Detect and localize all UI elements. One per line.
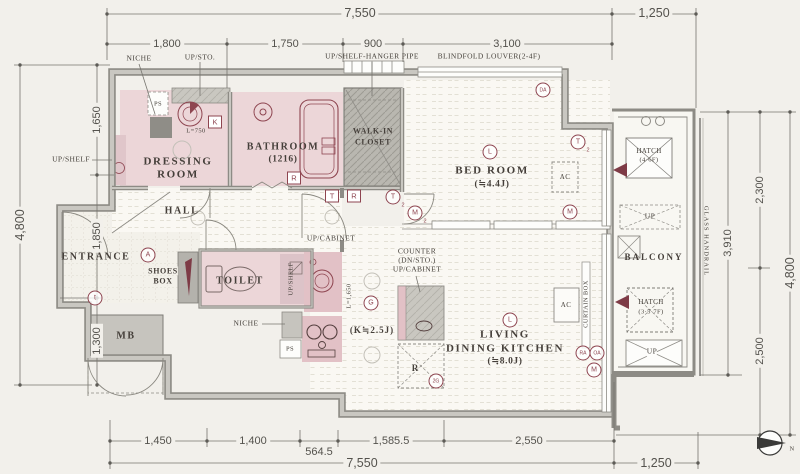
dim-bottom-seg-3: 564.5 — [302, 446, 336, 458]
dim-top-seg-4: 3,100 — [490, 38, 524, 50]
dim-left-seg-3: 1,300 — [91, 324, 103, 358]
dim-left-seg-1: 1,650 — [91, 103, 103, 137]
label-glass-handrail: GLASS HANDRAIL — [702, 206, 709, 276]
marker-oa: OA — [590, 346, 605, 361]
room-bathroom-2: (1216) — [269, 155, 298, 166]
marker-light-bedroom: L — [483, 145, 498, 160]
label-curtain-box: CURTAIN BOX — [582, 280, 589, 328]
dim-bottom-total: 7,550 — [343, 456, 380, 470]
label-up-cabinet: UP/CABINET — [307, 235, 355, 244]
room-hall: HALL — [165, 205, 200, 217]
dim-top-right: 1,250 — [635, 6, 672, 20]
label-ac-bedroom: AC — [560, 173, 571, 181]
dim-right-inner: 3,910 — [722, 226, 734, 260]
label-niche-top: NICHE — [127, 55, 152, 64]
room-ldk-1: LIVING — [480, 329, 530, 342]
dim-right-seg-1: 2,300 — [754, 173, 766, 207]
dim-right-total: 4,800 — [783, 254, 797, 291]
label-up-shelf-toilet: UP/SHELF — [287, 262, 294, 295]
label-up-balcony-1: UP — [645, 213, 655, 222]
label-hatch-upper-1: HATCH — [636, 147, 661, 155]
label-r-dashed: R — [412, 363, 419, 373]
marker-t-entry: t — [88, 291, 103, 306]
label-ps-2: PS — [286, 345, 294, 352]
label-ps-1: PS — [154, 100, 162, 107]
marker-a: A — [141, 248, 156, 263]
room-bathroom-1: BATHROOM — [247, 141, 320, 153]
box-marker-t: T — [325, 190, 339, 203]
label-ac-ldk: AC — [561, 301, 572, 309]
dim-right-seg-2: 2,500 — [754, 334, 766, 368]
floor-plan-drawing — [0, 0, 800, 474]
label-counter-3: UP/CABINET — [393, 266, 441, 275]
marker-m-right: M — [563, 205, 578, 220]
marker-ra: RA — [576, 346, 591, 361]
label-north: N — [789, 445, 794, 452]
dim-top-total: 7,550 — [341, 6, 378, 20]
marker-m-ldk: M — [587, 363, 602, 378]
label-blindfold-louver: BLINDFOLD LOUVER(2-4F) — [438, 53, 541, 62]
dim-bottom-right: 1,250 — [637, 456, 674, 470]
box-marker-r-bath: R — [287, 172, 301, 185]
room-toilet: TOILET — [216, 275, 264, 287]
dim-left-seg-2: 1,850 — [91, 219, 103, 253]
room-mb: MB — [116, 330, 135, 342]
dim-bottom-seg-5: 2,550 — [512, 435, 546, 447]
marker-da: DA — [536, 83, 551, 98]
room-entrance: ENTRANCE — [62, 251, 131, 263]
room-dressing-1: DRESSING — [143, 156, 212, 169]
label-hatch-upper-2: (4·6F) — [639, 156, 658, 163]
dim-bottom-seg-1: 1,450 — [141, 435, 175, 447]
marker-g: G — [364, 296, 379, 311]
room-ldk-3: (≒8.0J) — [487, 357, 522, 368]
label-niche-mid: NICHE — [234, 320, 259, 329]
marker-t2-right: T2 — [571, 135, 586, 150]
label-hatch-lower-1: HATCH — [638, 298, 663, 306]
room-wic-2: CLOSET — [355, 137, 391, 146]
dim-bottom-seg-2: 1,400 — [236, 435, 270, 447]
label-l750: L=750 — [186, 127, 205, 134]
dim-top-seg-2: 1,750 — [268, 38, 302, 50]
dim-left-total: 4,800 — [13, 206, 27, 243]
marker-light-ldk: L — [503, 313, 518, 328]
room-dressing-2: ROOM — [157, 169, 199, 182]
room-bedroom-1: BED ROOM — [455, 165, 529, 178]
room-shoes-1: SHOES — [148, 266, 178, 275]
label-hanger-pipe: UP/SHELF-HANGER PIPE — [325, 53, 419, 62]
marker-t2-left: T2 — [386, 190, 401, 205]
label-l1650: L=1,650 — [345, 283, 352, 308]
label-up-shelf: UP/SHELF — [52, 156, 90, 165]
marker-m2-left: M2 — [408, 206, 423, 221]
label-up-balcony-2: UP — [647, 348, 657, 357]
room-bedroom-2: (≒4.4J) — [474, 180, 509, 191]
marker-2g: 2G — [429, 374, 444, 389]
room-wic-1: WALK-IN — [353, 126, 393, 135]
box-marker-k: K — [208, 116, 222, 129]
room-balcony: BALCONY — [624, 252, 683, 262]
label-hatch-lower-2: (3·5·7F) — [638, 308, 663, 315]
room-shoes-2: BOX — [153, 276, 172, 285]
dim-top-seg-3: 900 — [361, 38, 385, 50]
floor-plan-page: 7,550 1,250 1,800 1,750 900 3,100 4,800 … — [0, 0, 800, 474]
room-ldk-2: DINING KITCHEN — [446, 343, 564, 356]
label-up-sto: UP/STO. — [185, 54, 215, 63]
room-kitchen: (K≒2.5J) — [350, 325, 394, 335]
box-marker-r: R — [347, 190, 361, 203]
dim-bottom-seg-4: 1,585.5 — [370, 435, 413, 447]
dim-top-seg-1: 1,800 — [150, 38, 184, 50]
